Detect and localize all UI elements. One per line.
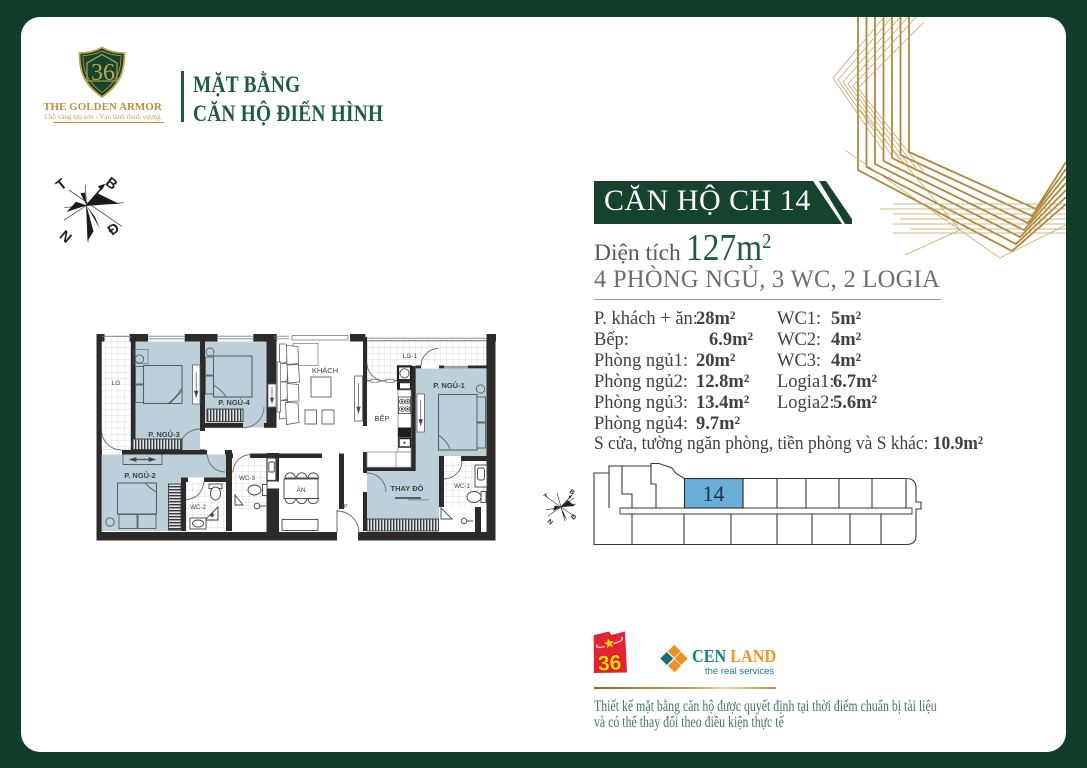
- svg-text:N: N: [546, 518, 554, 527]
- svg-text:T: T: [53, 176, 70, 194]
- svg-text:Đ: Đ: [105, 220, 123, 239]
- svg-text:WC-2: WC-2: [190, 504, 206, 511]
- svg-text:WC-1: WC-1: [454, 483, 470, 490]
- svg-text:TP: TP: [340, 504, 347, 510]
- svg-text:WC-3: WC-3: [239, 475, 255, 482]
- svg-text:B: B: [568, 488, 576, 497]
- svg-text:KHÁCH: KHÁCH: [312, 366, 338, 375]
- svg-text:B: B: [102, 175, 120, 194]
- svg-text:LG: LG: [112, 380, 121, 387]
- svg-text:36: 36: [597, 651, 622, 675]
- svg-text:T: T: [543, 493, 550, 501]
- svg-text:P. NGỦ-3: P. NGỦ-3: [148, 430, 180, 439]
- svg-text:P. NGỦ-1: P. NGỦ-1: [433, 381, 465, 390]
- svg-text:THAY ĐỒ: THAY ĐỒ: [391, 483, 424, 493]
- svg-text:P. NGỦ-4: P. NGỦ-4: [218, 398, 250, 407]
- svg-text:Đ: Đ: [570, 513, 578, 522]
- svg-text:ĂN: ĂN: [296, 485, 305, 494]
- svg-text:P. NGỦ-2: P. NGỦ-2: [124, 471, 156, 480]
- svg-text:14: 14: [703, 481, 725, 506]
- svg-text:36: 36: [91, 60, 115, 86]
- svg-text:N: N: [56, 228, 74, 246]
- svg-text:LG-1: LG-1: [403, 353, 418, 360]
- svg-text:BẾP: BẾP: [374, 413, 389, 423]
